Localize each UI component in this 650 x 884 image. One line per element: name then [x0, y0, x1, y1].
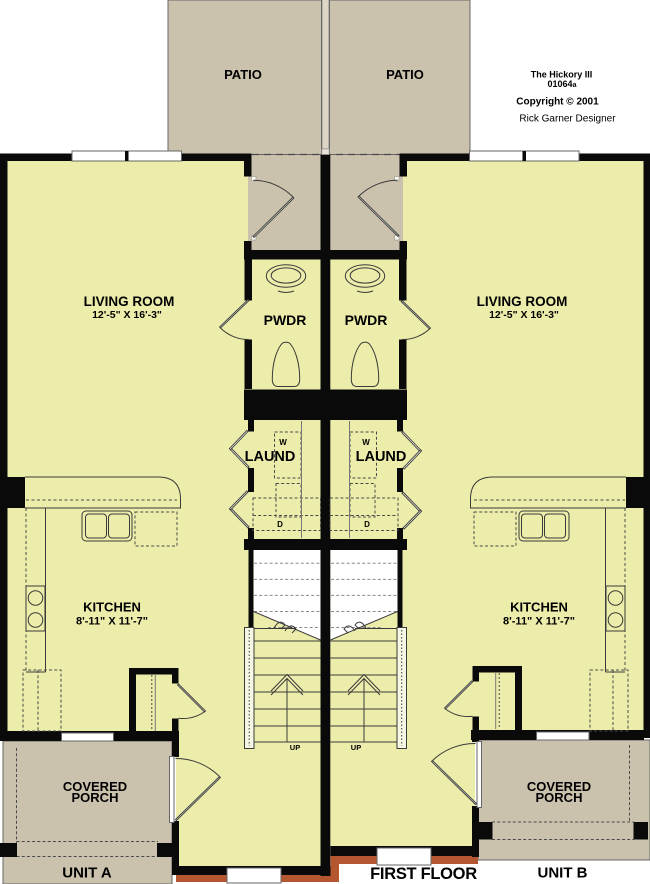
svg-text:KITCHEN: KITCHEN: [83, 600, 141, 615]
svg-text:Copyright © 2001: Copyright © 2001: [516, 97, 599, 108]
svg-text:UP: UP: [290, 743, 300, 752]
svg-text:PWDR: PWDR: [264, 312, 307, 328]
svg-text:Rick Garner Designer: Rick Garner Designer: [519, 114, 616, 125]
svg-text:LIVING ROOM: LIVING ROOM: [84, 294, 175, 309]
svg-text:UNIT A: UNIT A: [62, 865, 112, 882]
svg-text:PWDR: PWDR: [345, 312, 388, 328]
svg-text:D: D: [364, 520, 370, 529]
svg-text:PORCH: PORCH: [72, 790, 119, 805]
svg-text:8'-11" X 11'-7": 8'-11" X 11'-7": [76, 616, 148, 628]
svg-text:W: W: [362, 438, 370, 447]
svg-text:8'-11" X 11'-7": 8'-11" X 11'-7": [503, 616, 575, 628]
svg-text:12'-5" X 16'-3": 12'-5" X 16'-3": [92, 309, 162, 321]
svg-text:FIRST FLOOR: FIRST FLOOR: [370, 865, 477, 883]
svg-text:UNIT B: UNIT B: [538, 865, 588, 882]
svg-text:W: W: [279, 438, 287, 447]
svg-text:D: D: [277, 520, 283, 529]
svg-text:12'-5" X 16'-3": 12'-5" X 16'-3": [489, 309, 559, 321]
svg-text:UP: UP: [351, 743, 361, 752]
svg-text:PORCH: PORCH: [536, 790, 583, 805]
svg-text:KITCHEN: KITCHEN: [510, 600, 568, 615]
svg-text:PATIO: PATIO: [224, 67, 262, 82]
svg-text:PATIO: PATIO: [386, 67, 424, 82]
svg-text:LAUND: LAUND: [356, 449, 407, 465]
svg-text:LAUND: LAUND: [245, 449, 296, 465]
svg-text:01064a: 01064a: [548, 79, 577, 89]
svg-text:The Hickory III: The Hickory III: [531, 70, 593, 80]
svg-text:LIVING ROOM: LIVING ROOM: [477, 294, 568, 309]
